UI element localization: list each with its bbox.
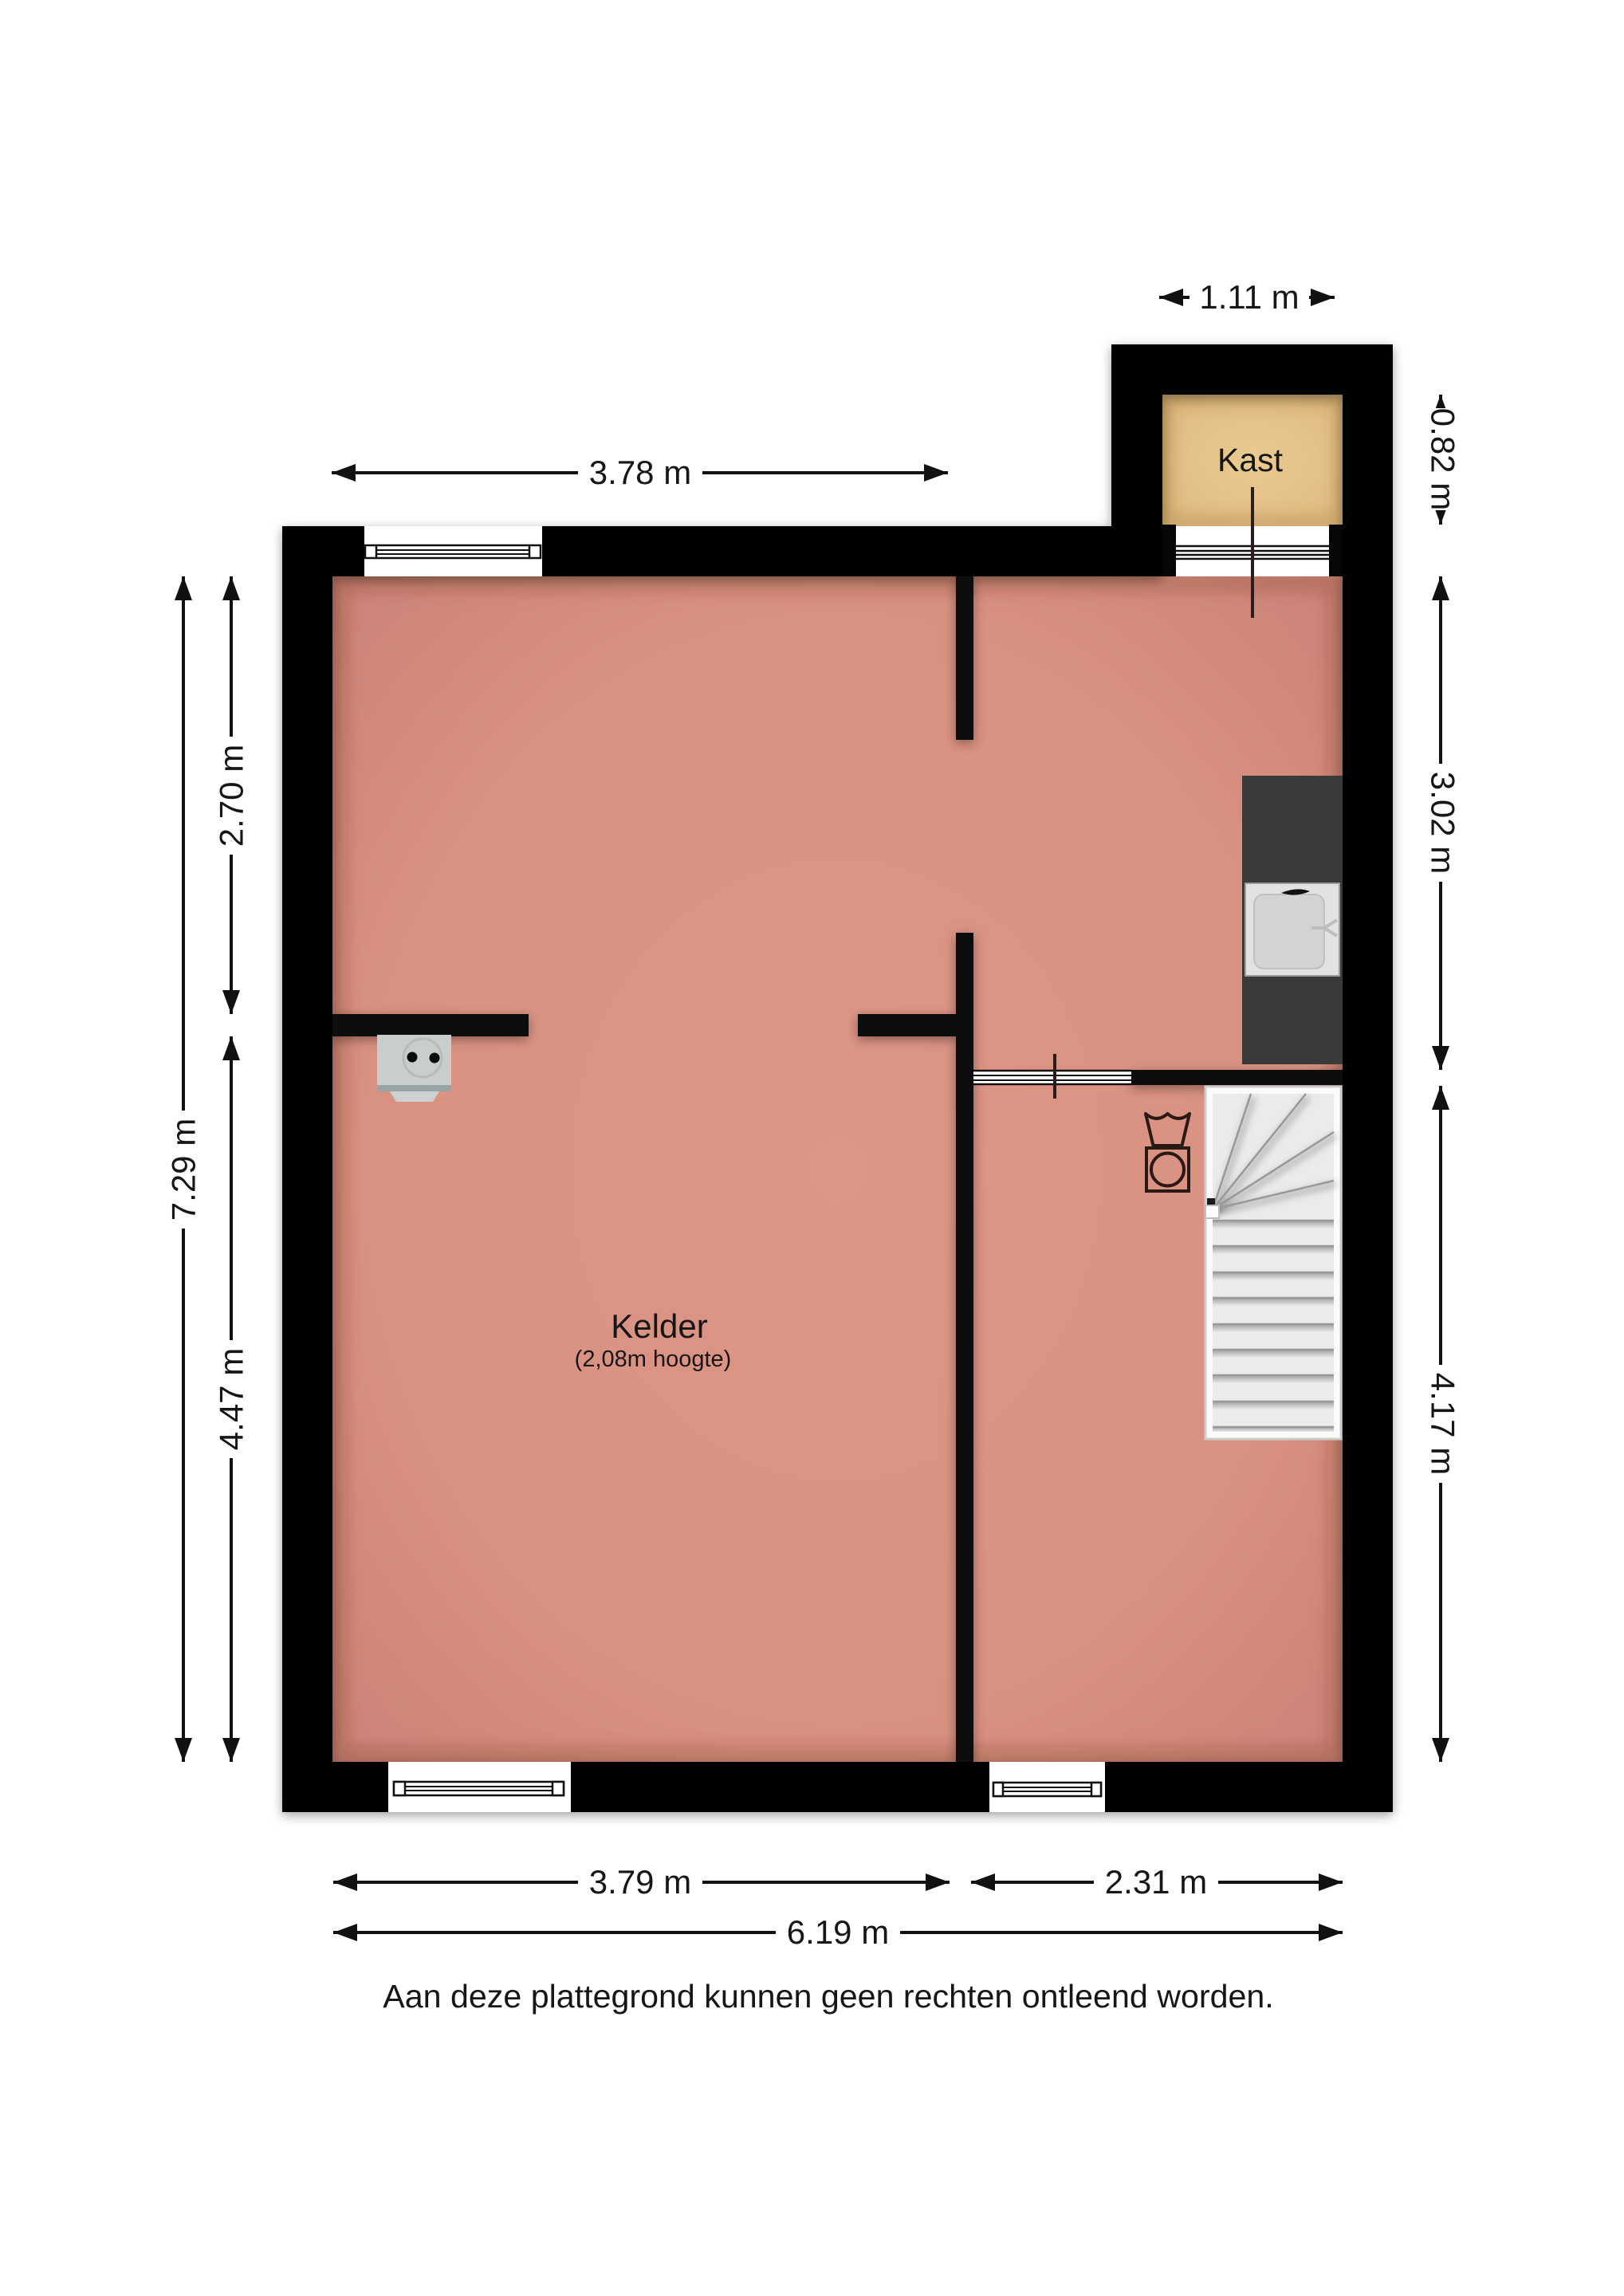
svg-text:6.19 m: 6.19 m [787,1913,889,1951]
svg-text:1.11 m: 1.11 m [1199,278,1299,316]
svg-text:4.47 m: 4.47 m [213,1348,250,1450]
svg-text:4.17 m: 4.17 m [1425,1373,1462,1475]
svg-text:3.79 m: 3.79 m [589,1863,691,1901]
svg-text:Kelder: Kelder [611,1307,707,1345]
svg-text:2.31 m: 2.31 m [1105,1863,1207,1901]
svg-text:2.70 m: 2.70 m [213,745,250,847]
svg-text:Aan deze plattegrond kunnen ge: Aan deze plattegrond kunnen geen rechten… [383,1978,1274,2015]
svg-text:3.02 m: 3.02 m [1425,772,1462,874]
svg-text:0.82 m: 0.82 m [1425,408,1462,510]
svg-text:(2,08m hoogte): (2,08m hoogte) [575,1347,732,1372]
svg-text:3.78 m: 3.78 m [589,454,691,491]
svg-text:Kast: Kast [1217,442,1284,478]
svg-text:7.29 m: 7.29 m [165,1119,203,1221]
